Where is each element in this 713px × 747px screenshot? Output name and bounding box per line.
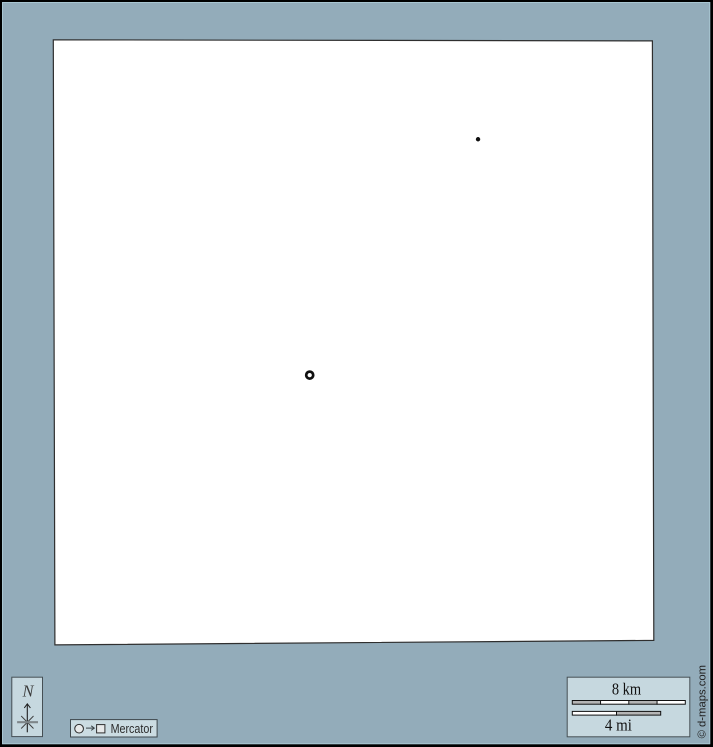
svg-text:© d-maps.com: © d-maps.com [696, 665, 708, 739]
svg-text:Mercator: Mercator [111, 721, 154, 736]
svg-text:N: N [21, 682, 34, 701]
svg-text:4 mi: 4 mi [605, 716, 632, 735]
svg-text:8 km: 8 km [612, 680, 642, 699]
